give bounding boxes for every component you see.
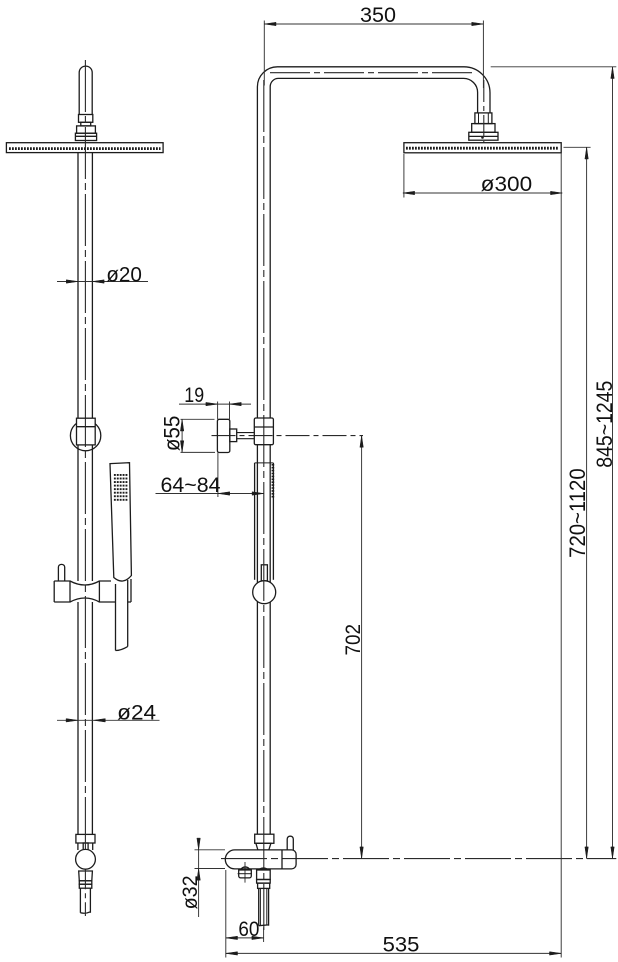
svg-text:ø20: ø20 [106, 263, 142, 286]
svg-text:845~1245: 845~1245 [592, 381, 617, 468]
svg-text:535: 535 [383, 934, 420, 957]
svg-text:ø55: ø55 [160, 416, 185, 452]
svg-text:19: 19 [184, 384, 204, 407]
svg-text:720~1120: 720~1120 [565, 468, 590, 558]
svg-text:60: 60 [238, 918, 259, 941]
svg-text:ø24: ø24 [117, 701, 156, 724]
svg-text:ø300: ø300 [481, 173, 533, 196]
svg-text:702: 702 [341, 624, 365, 656]
svg-text:64~84: 64~84 [161, 474, 221, 497]
svg-text:ø32: ø32 [178, 875, 202, 909]
svg-text:350: 350 [360, 4, 396, 27]
